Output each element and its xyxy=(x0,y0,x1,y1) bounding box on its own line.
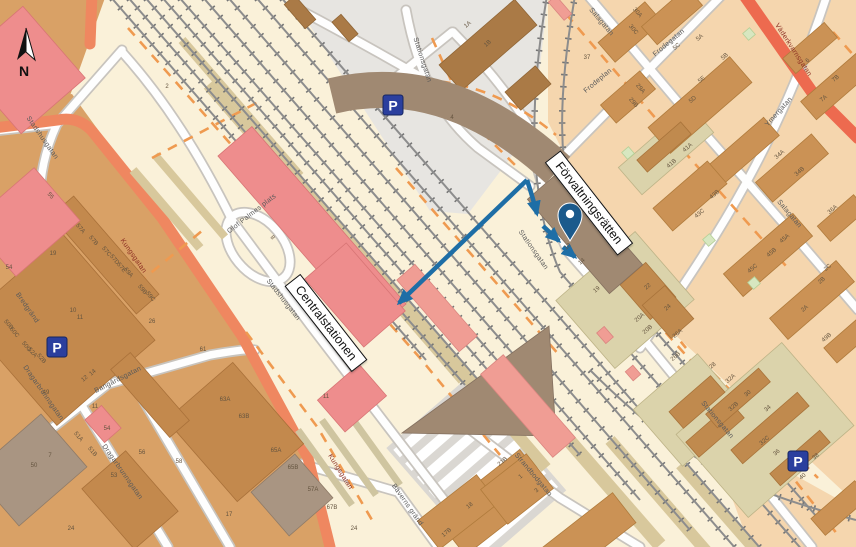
house-number: 4 xyxy=(450,115,453,121)
parking-icon: P xyxy=(47,337,68,358)
house-number: 56 xyxy=(139,450,146,456)
house-number: 24 xyxy=(68,526,75,532)
house-number: 53 xyxy=(111,473,118,479)
house-number: 11 xyxy=(323,394,329,400)
parking-icon-letter: P xyxy=(388,97,397,113)
svg-text:N: N xyxy=(19,63,29,79)
house-number: 61 xyxy=(200,347,207,353)
house-number: 67B xyxy=(327,505,338,511)
house-number: 7 xyxy=(48,453,51,459)
house-number: 26 xyxy=(149,319,156,325)
city-map: N StadshusgatanStadshusgatanOlof Palmes … xyxy=(0,0,856,547)
house-number: 17 xyxy=(226,512,233,518)
parking-icon-letter: P xyxy=(52,339,61,355)
house-number: 10 xyxy=(70,308,77,314)
house-number: 57A xyxy=(308,487,319,493)
house-number: 2 xyxy=(165,84,168,90)
house-number: 58 xyxy=(176,459,183,465)
parking-icon: P xyxy=(383,95,404,116)
parking-icon-letter: P xyxy=(793,453,802,469)
house-number: 19 xyxy=(50,251,57,257)
house-number: 63B xyxy=(239,414,250,420)
house-number: 63A xyxy=(220,397,231,403)
house-number: 49 xyxy=(43,390,50,396)
house-number: 54 xyxy=(104,426,111,432)
house-number: 65B xyxy=(288,465,299,471)
house-number: 37 xyxy=(584,55,591,61)
house-number: 11 xyxy=(92,404,98,410)
house-number: 65A xyxy=(271,448,282,454)
house-number: 54 xyxy=(6,265,13,271)
parking-icon: P xyxy=(788,451,809,472)
house-number: 24 xyxy=(351,526,358,532)
house-number: 11 xyxy=(77,315,83,321)
house-number: 50 xyxy=(31,463,38,469)
